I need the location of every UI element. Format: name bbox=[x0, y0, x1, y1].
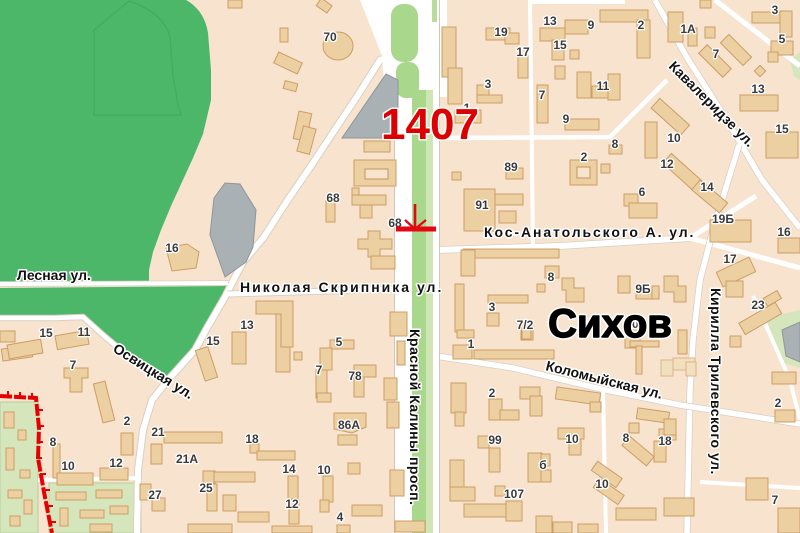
svg-text:89: 89 bbox=[504, 160, 518, 174]
svg-text:8: 8 bbox=[548, 270, 555, 284]
svg-text:107: 107 bbox=[504, 487, 524, 501]
svg-text:2: 2 bbox=[489, 386, 496, 400]
svg-text:Кирилла Трилевского ул.: Кирилла Трилевского ул. bbox=[708, 288, 724, 475]
svg-text:16: 16 bbox=[165, 241, 179, 255]
svg-text:21A: 21A bbox=[176, 452, 198, 466]
svg-text:12: 12 bbox=[660, 157, 674, 171]
svg-text:19Б: 19Б bbox=[712, 212, 734, 226]
svg-text:7: 7 bbox=[70, 358, 77, 372]
svg-text:7: 7 bbox=[713, 47, 720, 61]
svg-text:Николая Скрипника ул.: Николая Скрипника ул. bbox=[240, 279, 443, 295]
svg-text:1: 1 bbox=[468, 337, 475, 351]
svg-text:Лесная ул.: Лесная ул. bbox=[17, 267, 91, 283]
svg-text:б: б bbox=[539, 458, 546, 472]
svg-text:12: 12 bbox=[109, 456, 123, 470]
svg-text:Кос-Анатольского А. ул.: Кос-Анатольского А. ул. bbox=[484, 224, 695, 240]
svg-text:11: 11 bbox=[597, 79, 610, 93]
svg-text:13: 13 bbox=[543, 14, 557, 28]
svg-text:3: 3 bbox=[489, 300, 496, 314]
svg-text:99: 99 bbox=[488, 433, 502, 447]
svg-text:10: 10 bbox=[595, 477, 609, 491]
svg-text:78: 78 bbox=[348, 369, 362, 383]
svg-text:18: 18 bbox=[658, 434, 672, 448]
svg-text:86A: 86A bbox=[338, 418, 360, 432]
svg-text:7/2: 7/2 bbox=[517, 318, 534, 332]
svg-text:9: 9 bbox=[563, 112, 570, 126]
svg-text:8: 8 bbox=[623, 431, 630, 445]
svg-text:70: 70 bbox=[323, 30, 337, 44]
svg-text:13: 13 bbox=[240, 318, 254, 332]
svg-text:23: 23 bbox=[751, 298, 765, 312]
svg-text:25: 25 bbox=[199, 481, 213, 495]
svg-text:8: 8 bbox=[612, 137, 619, 151]
svg-text:Сихов: Сихов bbox=[548, 302, 672, 346]
svg-text:9: 9 bbox=[588, 18, 595, 32]
svg-text:12: 12 bbox=[285, 497, 299, 511]
svg-text:15: 15 bbox=[206, 334, 220, 348]
svg-text:19: 19 bbox=[494, 25, 508, 39]
svg-text:27: 27 bbox=[148, 488, 162, 502]
svg-text:7: 7 bbox=[539, 88, 546, 102]
svg-text:14: 14 bbox=[700, 180, 714, 194]
svg-text:2: 2 bbox=[124, 414, 131, 428]
svg-text:15: 15 bbox=[775, 122, 789, 136]
svg-text:21: 21 bbox=[151, 425, 165, 439]
svg-text:5: 5 bbox=[779, 32, 786, 46]
svg-text:14: 14 bbox=[282, 462, 296, 476]
svg-text:15: 15 bbox=[39, 326, 53, 340]
svg-text:13: 13 bbox=[751, 82, 765, 96]
svg-text:5: 5 bbox=[336, 335, 343, 349]
svg-text:17: 17 bbox=[723, 252, 737, 266]
svg-text:2: 2 bbox=[581, 150, 588, 164]
svg-text:15: 15 bbox=[553, 38, 567, 52]
svg-text:10: 10 bbox=[61, 459, 75, 473]
svg-text:11: 11 bbox=[78, 325, 91, 339]
svg-text:2: 2 bbox=[775, 396, 782, 410]
svg-text:8: 8 bbox=[50, 435, 57, 449]
svg-text:91: 91 bbox=[475, 198, 489, 212]
svg-text:18: 18 bbox=[245, 432, 259, 446]
svg-text:2: 2 bbox=[638, 18, 645, 32]
svg-text:1A: 1A bbox=[680, 22, 696, 36]
svg-text:4: 4 bbox=[337, 510, 344, 524]
svg-text:Красной Калины просп.: Красной Калины просп. bbox=[407, 329, 423, 505]
svg-text:7: 7 bbox=[316, 363, 323, 377]
svg-text:10: 10 bbox=[667, 131, 681, 145]
svg-text:9Б: 9Б bbox=[635, 282, 651, 296]
svg-text:10: 10 bbox=[317, 463, 331, 477]
svg-text:10: 10 bbox=[565, 432, 579, 446]
svg-text:68: 68 bbox=[326, 191, 340, 205]
svg-text:3: 3 bbox=[485, 77, 492, 91]
svg-text:1407: 1407 bbox=[381, 100, 479, 149]
svg-text:16: 16 bbox=[777, 225, 791, 239]
svg-text:6: 6 bbox=[639, 185, 646, 199]
svg-text:7: 7 bbox=[772, 493, 779, 507]
svg-text:17: 17 bbox=[516, 45, 530, 59]
svg-text:3: 3 bbox=[772, 3, 779, 17]
